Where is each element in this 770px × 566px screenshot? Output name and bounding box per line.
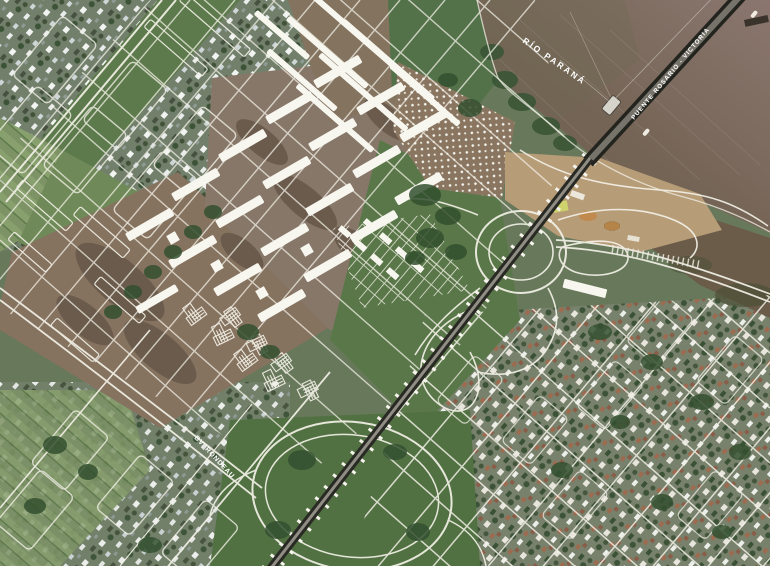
map-canvas: RÍO PARANÁ PUENTE ROSARIO - VICTORIA BV.… (0, 0, 770, 566)
grass-south-oval (210, 410, 480, 566)
satellite-map[interactable]: RÍO PARANÁ PUENTE ROSARIO - VICTORIA BV.… (0, 0, 770, 566)
